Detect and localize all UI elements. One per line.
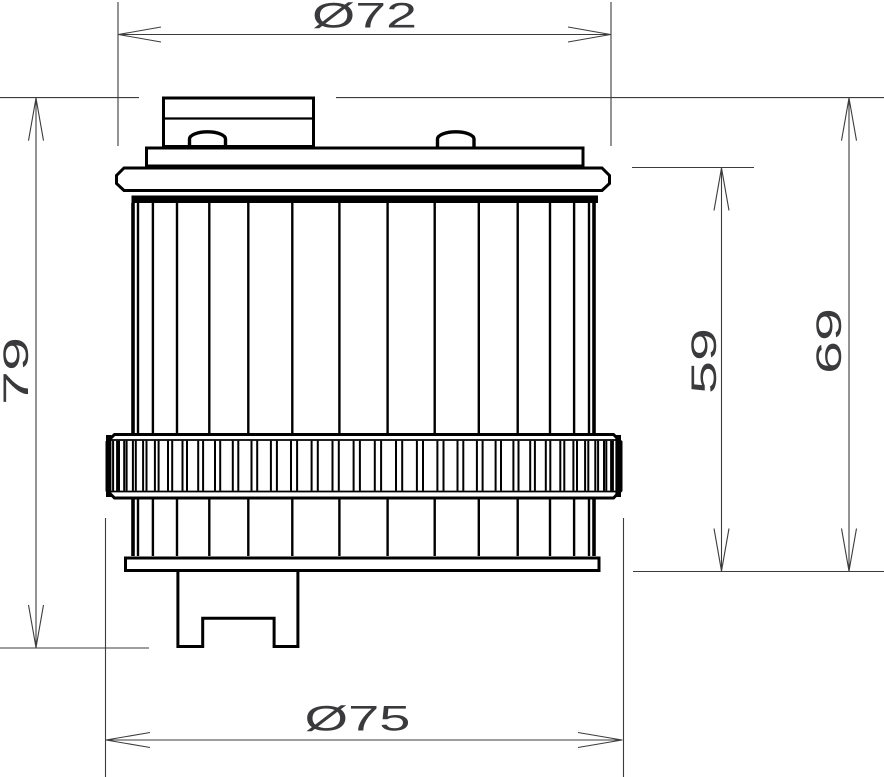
svg-text:Ø75: Ø75 [305, 700, 411, 739]
svg-text:Ø72: Ø72 [312, 0, 417, 36]
svg-text:79: 79 [0, 337, 36, 405]
svg-text:69: 69 [810, 308, 849, 374]
svg-text:59: 59 [685, 328, 724, 394]
